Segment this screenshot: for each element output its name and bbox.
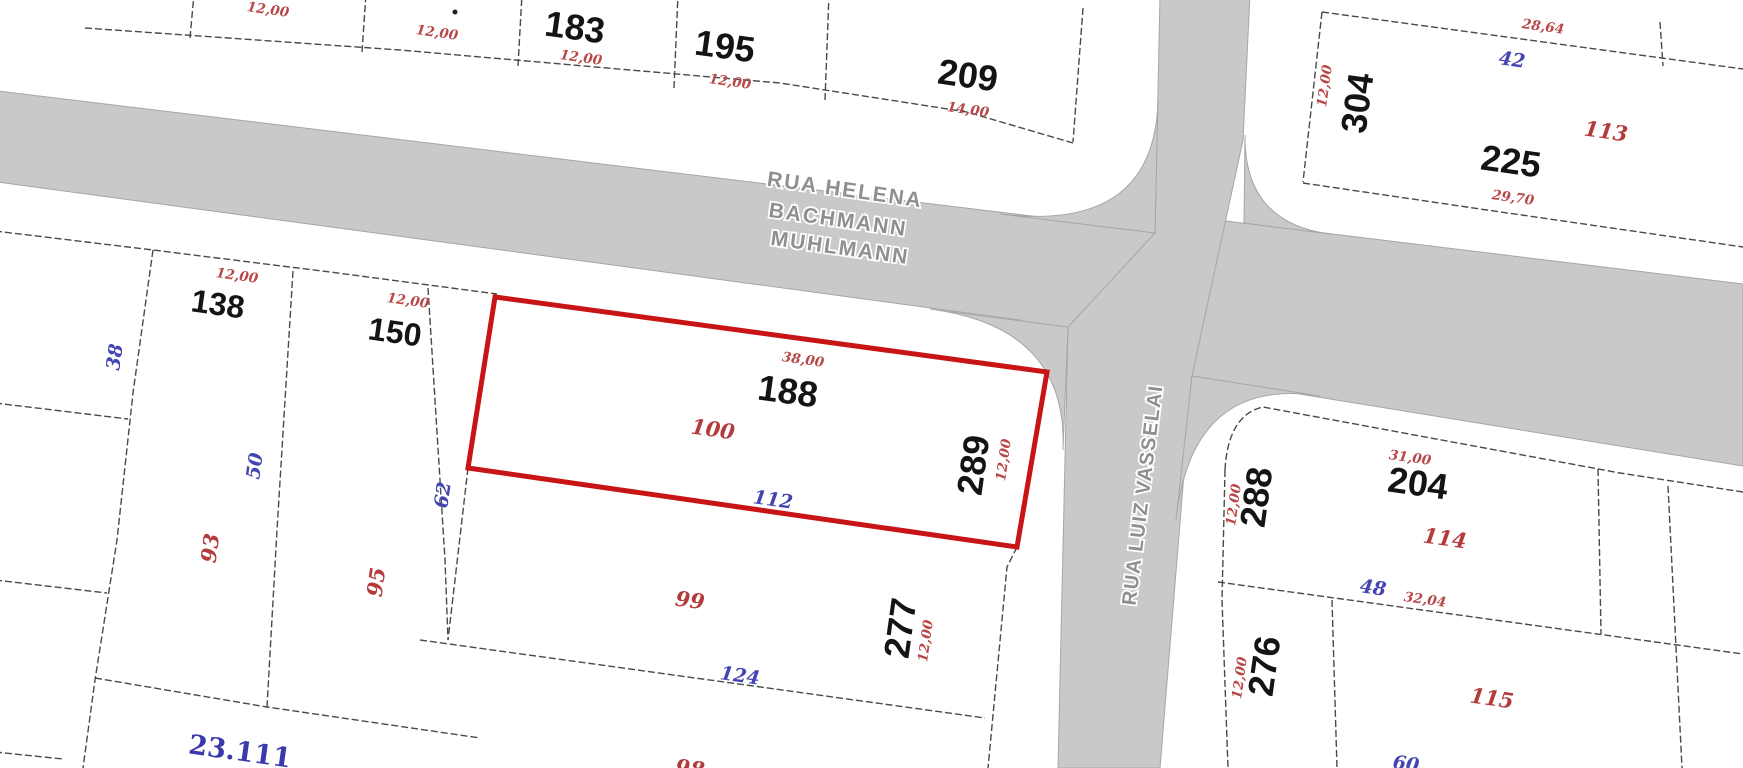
reference-number-124: 124 [719,662,761,689]
reference-number-115: 115 [1469,683,1516,714]
road-surfaces [0,0,1743,768]
lot-line-48 [1218,582,1743,654]
reference-number-100: 100 [690,414,737,445]
dimension-label: 29,70 [1490,187,1536,209]
lot277-east-line [988,547,1017,768]
lot-number-138: 138 [189,282,247,325]
lot-number-304: 304 [1333,70,1382,135]
dimension-label: 12,00 [1314,63,1336,108]
lot-number-225: 225 [1478,137,1543,186]
reference-number-114: 114 [1422,523,1469,554]
cadastral-map: 12,00 12,00 183 12,00 195 12,00 209 14,0… [0,0,1743,768]
reference-number-113: 113 [1583,116,1630,147]
lot-divider-93-95 [267,271,293,707]
lot-number-188-highlighted: 188 [755,367,820,416]
dimension-label: 12,00 [415,22,460,44]
lot-divider [825,0,829,100]
dimension-label: 12,00 [386,290,431,312]
southeast-block-lines [1218,407,1743,768]
left-divider [0,580,107,593]
dimension-label: 14,00 [946,99,991,121]
lot-number-195: 195 [692,22,757,71]
survey-dot [453,10,458,15]
lot276-east-line [1332,600,1337,768]
lot-divider [362,0,366,52]
reference-number-95: 95 [362,566,391,598]
lot-number-289: 289 [949,432,998,497]
main-block-lines [0,231,1017,768]
lot-divider-far-east [1668,486,1682,768]
reference-number-42: 42 [1497,47,1526,72]
corner-line [0,752,63,759]
lot-number-209: 209 [935,51,1000,100]
reference-number-60-cut: 60 [1391,751,1420,768]
reference-number-48: 48 [1358,575,1387,600]
lot-divider [190,0,194,38]
block-east-line [1073,8,1083,142]
lot-number-150: 150 [366,310,424,353]
lot-divider-150 [428,288,448,640]
road-helena-bachmann-muhlmann [0,90,1743,466]
dimension-label: 12,00 [708,71,753,93]
reference-number-38: 38 [102,342,127,371]
west-spine-line [83,250,153,768]
lot-number-183: 183 [542,3,607,52]
lot-divider [1660,22,1663,66]
lot-divider-east [1598,469,1601,634]
dimension-label: 12,00 [246,0,291,21]
lot-number-204: 204 [1385,459,1450,508]
reference-number-93: 93 [196,532,225,564]
dimension-label: 28,64 [1520,16,1565,38]
dimension-label: 12,00 [215,265,260,287]
reference-number-99: 99 [674,586,707,615]
dimension-label: 38,00 [781,349,826,371]
left-divider [0,403,128,419]
south-divider [95,678,480,738]
reference-number-23111: 23.111 [187,729,294,768]
lot-divider [518,0,522,66]
curb-fillet-nw [1000,100,1158,233]
reference-number-50: 50 [242,451,267,480]
reference-number-62: 62 [430,480,455,509]
highlighted-parcel-188 [468,297,1047,547]
reference-number-cut: 98 [674,754,707,768]
lot-divider [674,0,678,88]
